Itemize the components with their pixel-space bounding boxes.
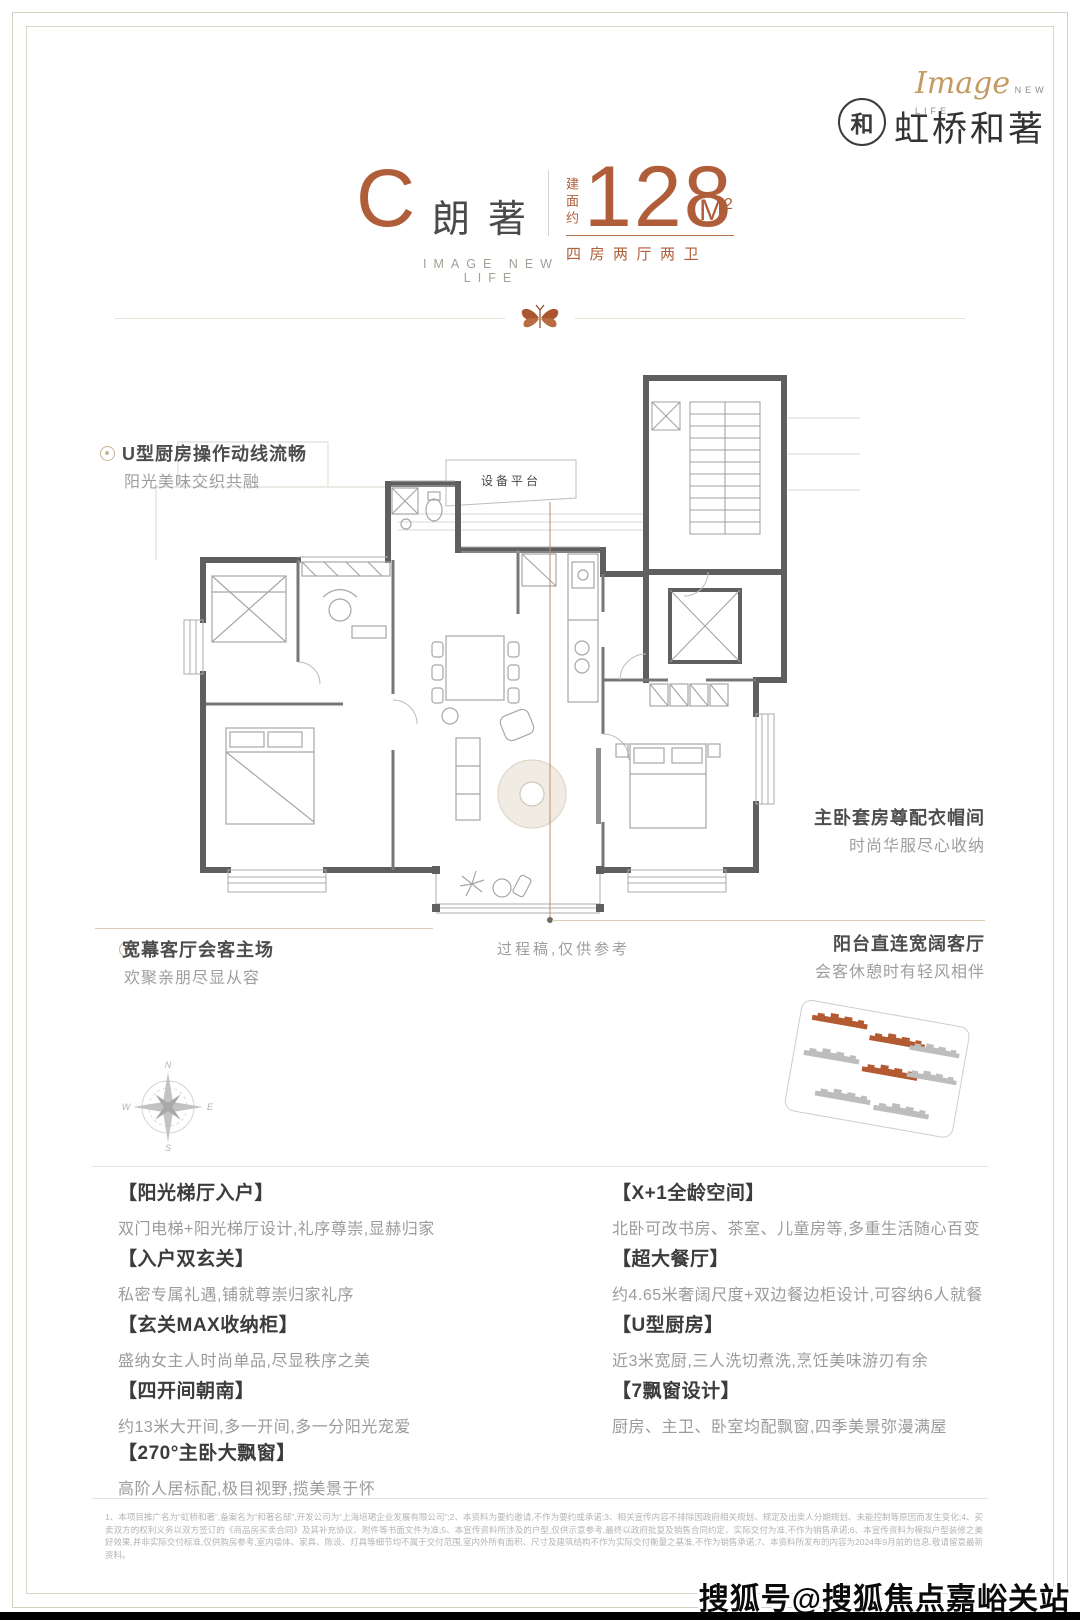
unit-letter: C	[356, 152, 415, 246]
feature-title: 【X+1全龄空间】	[612, 1178, 1032, 1205]
equipment-platform	[398, 460, 646, 530]
area-unit: M2	[699, 194, 733, 228]
feature-desc: 约4.65米奢阔尺度+双边餐边柜设计,可容纳6人就餐	[612, 1281, 1032, 1305]
feature-item: 【270°主卧大飘窗】 高阶人居标配,极目视野,揽美景于怀	[118, 1438, 538, 1499]
feature-desc: 盛纳女主人时尚单品,尽显秩序之美	[118, 1347, 538, 1371]
callout-master-subtitle: 时尚华服尽心收纳	[849, 832, 985, 856]
disclaimer-text: 1、本项目推广名为“虹桥和著”,备案名为“和著名邸”,开发公司为“上海培珺企业发…	[105, 1511, 983, 1561]
feature-title: 【四开间朝南】	[118, 1376, 538, 1403]
feature-title: 【超大餐厅】	[612, 1244, 1032, 1271]
feature-desc: 约13米大开间,多一开间,多一分阳光宠爱	[118, 1413, 538, 1437]
svg-text:S: S	[165, 1143, 171, 1152]
feature-item: 【四开间朝南】 约13米大开间,多一开间,多一分阳光宠爱	[118, 1376, 538, 1437]
platform-label: 设备平台	[481, 473, 541, 488]
site-plan	[772, 995, 984, 1145]
plan-partitions	[206, 550, 756, 870]
feature-desc: 厨房、主卫、卧室均配飘窗,四季美景弥漫满屋	[612, 1413, 1032, 1437]
features-bottom-rule	[92, 1498, 988, 1499]
svg-text:E: E	[207, 1102, 214, 1112]
callout-living-title: 宽幕客厅会客主场	[122, 936, 274, 962]
feature-desc: 双门电梯+阳光梯厅设计,礼序尊崇,显赫归家	[118, 1215, 538, 1239]
unit-name: 朗著	[432, 188, 544, 243]
feature-desc: 私密专属礼遇,铺就尊崇归家礼序	[118, 1281, 538, 1305]
callout-balcony-leader	[552, 920, 985, 921]
callout-living-subtitle: 欢聚亲朋尽显从容	[124, 964, 260, 988]
feature-item: 【入户双玄关】 私密专属礼遇,铺就尊崇归家礼序	[118, 1244, 538, 1305]
feature-desc: 近3米宽厨,三人洗切煮洗,烹饪美味游刃有余	[612, 1347, 1032, 1371]
callout-master-title: 主卧套房尊配衣帽间	[814, 804, 985, 830]
layout-label: 四房两厅两卫	[566, 235, 734, 264]
draft-note: 过程稿,仅供参考	[497, 938, 630, 959]
callout-living-leader	[95, 928, 433, 929]
feature-item: 【U型厨房】 近3米宽厨,三人洗切煮洗,烹饪美味游刃有余	[612, 1310, 1032, 1371]
plan-windows	[184, 481, 774, 913]
ornament-line-right	[575, 318, 965, 319]
feature-item: 【7飘窗设计】 厨房、主卫、卧室均配飘窗,四季美景弥漫满屋	[612, 1376, 1032, 1437]
callout-kitchen-title: U型厨房操作动线流畅	[122, 440, 307, 466]
brand-logo-text: 虹桥和著	[894, 101, 1046, 152]
platform-leader	[547, 502, 553, 923]
feature-title: 【270°主卧大飘窗】	[118, 1438, 538, 1465]
callout-balcony-title: 阳台直连宽阔客厅	[833, 930, 985, 956]
butterfly-ornament-icon	[518, 303, 562, 335]
svg-text:W: W	[122, 1102, 132, 1112]
callout-kitchen-bullet-icon	[100, 446, 115, 461]
brand-badge-icon: 和	[838, 98, 886, 146]
area-prefix: 建面约	[564, 177, 578, 239]
callout-balcony-subtitle: 会客休憩时有轻风相伴	[815, 958, 985, 982]
bottom-black-bar	[0, 1612, 1080, 1620]
features-top-rule	[92, 1166, 988, 1167]
title-divider	[548, 170, 549, 236]
feature-title: 【入户双玄关】	[118, 1244, 538, 1271]
feature-item: 【玄关MAX收纳柜】 盛纳女主人时尚单品,尽显秩序之美	[118, 1310, 538, 1371]
feature-desc: 北卧可改书房、茶室、儿童房等,多重生活随心百变	[612, 1215, 1032, 1239]
feature-item: 【超大餐厅】 约4.65米奢阔尺度+双边餐边柜设计,可容纳6人就餐	[612, 1244, 1032, 1305]
elevator	[670, 590, 740, 662]
stairs	[652, 402, 760, 534]
feature-title: 【玄关MAX收纳柜】	[118, 1310, 538, 1337]
feature-desc: 高阶人居标配,极目视野,揽美景于怀	[118, 1475, 538, 1499]
flyer-page: Image NEW LIFE 和 虹桥和著 C 朗著 建面约 128 M2 四房…	[0, 0, 1080, 1620]
callout-kitchen-subtitle: 阳光美味交织共融	[124, 468, 260, 492]
feature-title: 【U型厨房】	[612, 1310, 1032, 1337]
compass-icon: N E S W	[120, 1056, 216, 1152]
feature-title: 【阳光梯厅入户】	[118, 1178, 538, 1205]
svg-text:N: N	[165, 1060, 172, 1070]
feature-item: 【X+1全龄空间】 北卧可改书房、茶室、儿童房等,多重生活随心百变	[612, 1178, 1032, 1239]
tagline: IMAGE NEW LIFE	[396, 257, 586, 285]
feature-title: 【7飘窗设计】	[612, 1376, 1032, 1403]
balcony-posts	[432, 866, 604, 912]
ornament-line-left	[115, 318, 505, 319]
feature-item: 【阳光梯厅入户】 双门电梯+阳光梯厅设计,礼序尊崇,显赫归家	[118, 1178, 538, 1239]
